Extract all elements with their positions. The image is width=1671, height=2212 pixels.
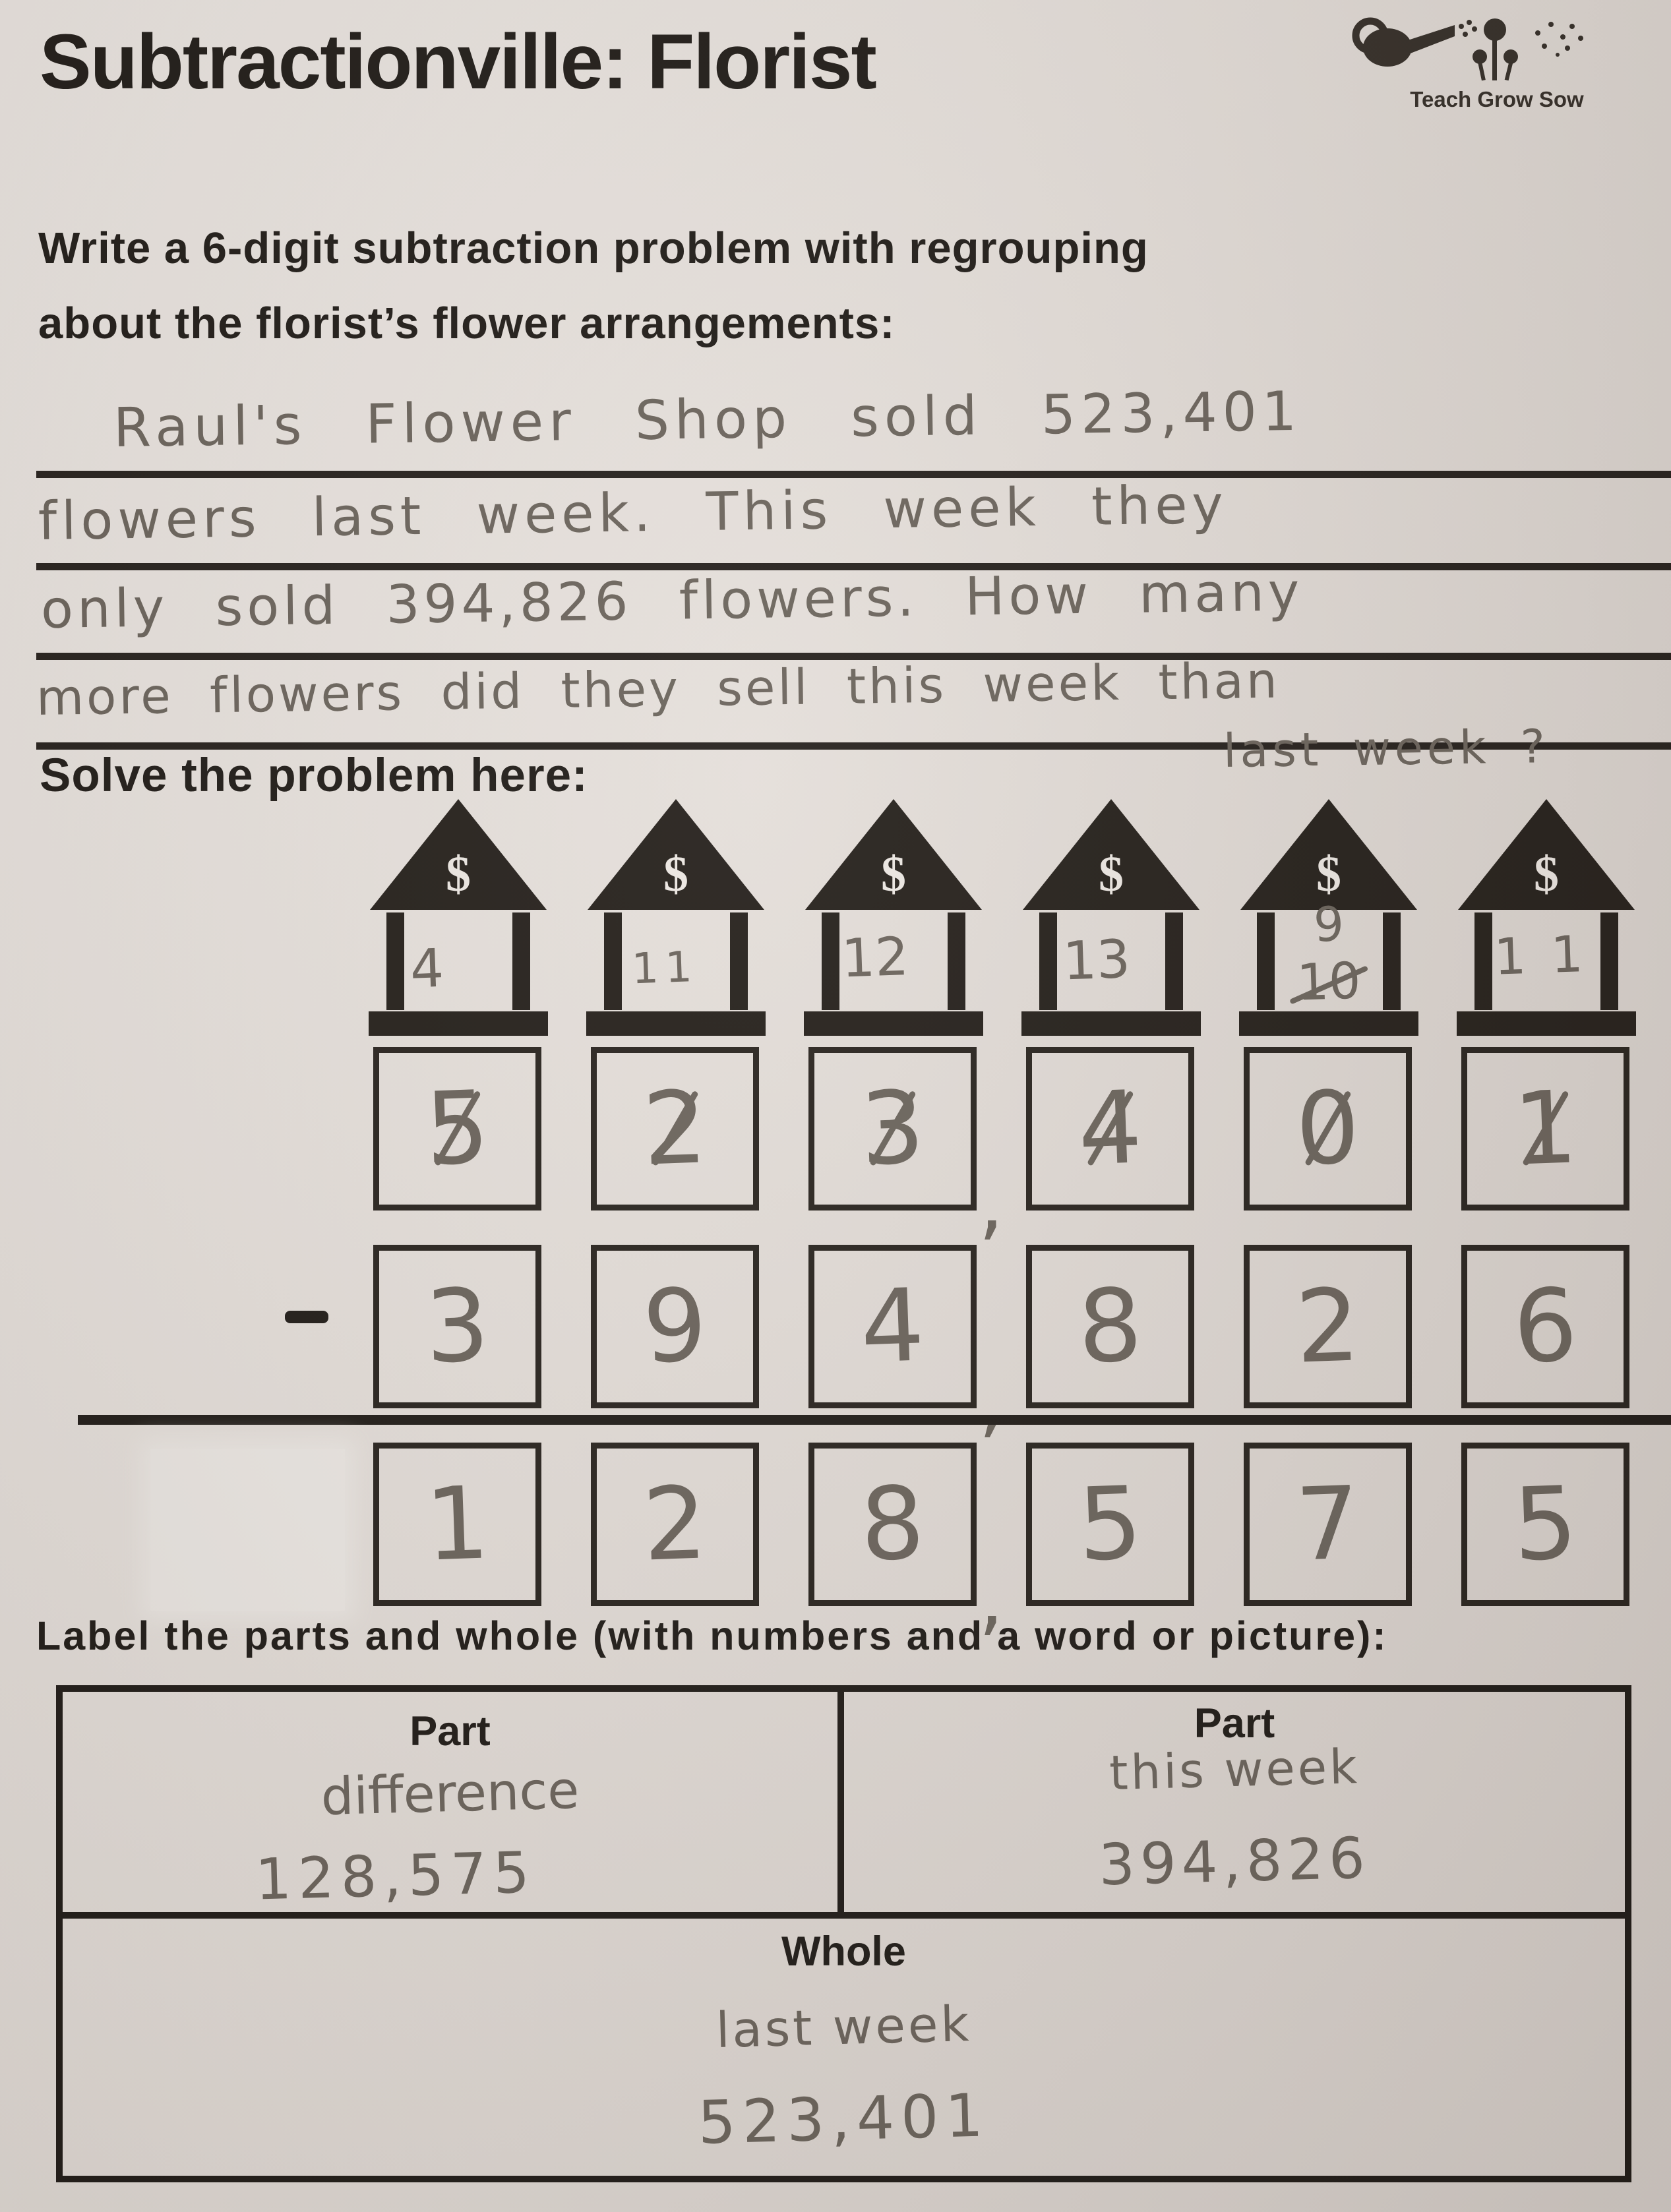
- subtrahend-digit-box: 2: [1244, 1245, 1412, 1408]
- subtrahend-digit-box: 9: [591, 1245, 759, 1408]
- bank-roof: $: [1458, 799, 1635, 910]
- page-title: Subtractionville: Florist: [40, 17, 876, 107]
- minuend-digit-box: 4: [1026, 1047, 1194, 1211]
- erased-box: [150, 1449, 345, 1611]
- subtrahend-digit-box: 3: [373, 1245, 541, 1408]
- dollar-sign-icon: $: [1534, 846, 1559, 910]
- minuend-digit-box: 1: [1461, 1047, 1629, 1211]
- table-border: [56, 2176, 1631, 2182]
- dollar-sign-icon: $: [1099, 846, 1124, 910]
- part-right-number: 394,826: [843, 1819, 1625, 1905]
- dollar-sign-icon: $: [881, 846, 906, 910]
- writing-line: [36, 471, 1671, 478]
- difference-digit-box: 5: [1026, 1443, 1194, 1606]
- bank-roof: $: [1023, 799, 1200, 910]
- regroup-note: 12: [810, 922, 1007, 990]
- minuend-row: 5 2 3 4 0 1 ,: [373, 1047, 1671, 1211]
- regroup-note: 11: [593, 940, 797, 996]
- bank-icon: $ 9 10: [1246, 799, 1411, 1038]
- dollar-sign-icon: $: [663, 846, 688, 910]
- story-line-3: only sold 394,826 flowers. How many: [40, 561, 1303, 640]
- whole-word: last week: [62, 1979, 1625, 2076]
- worksheet-page: Subtractionville: Florist Teach Grow Sow…: [0, 0, 1671, 2212]
- minuend-digit-box: 3: [808, 1047, 977, 1211]
- difference-digit-box: 8: [808, 1443, 977, 1606]
- watering-can-icon: [1356, 20, 1477, 67]
- whole-header: Whole: [63, 1928, 1625, 1975]
- thousands-comma: ,: [979, 1356, 1004, 1447]
- solve-heading: Solve the problem here:: [40, 749, 588, 802]
- story-line-1: Raul's Flower Shop sold 523,401: [113, 380, 1302, 460]
- regroup-note: 9: [1246, 894, 1413, 955]
- logo-caption: Teach Grow Sow: [1410, 87, 1584, 111]
- bank-roof: $: [1240, 799, 1417, 910]
- bank-icon: $ 11: [593, 799, 758, 1038]
- bank-base: [369, 1011, 548, 1036]
- subtrahend-row: 3 9 4 8 2 6 ,: [373, 1245, 1671, 1408]
- regroup-banks-row: $ 4 $ 11 $ 12 $ 13 $: [376, 799, 1629, 1038]
- bank-icon: $ 13: [1029, 799, 1194, 1038]
- minuend-digit-box: 2: [591, 1047, 759, 1211]
- dandelion-icon: [1473, 18, 1518, 80]
- story-line-4: more flowers did they sell this week tha…: [36, 653, 1280, 727]
- crossed-out-regroup-note: 10: [1246, 949, 1413, 1014]
- equals-rule-line: [78, 1415, 1671, 1425]
- bank-roof: $: [370, 799, 547, 910]
- bank-icon: $ 12: [811, 799, 976, 1038]
- bank-base: [1239, 1011, 1418, 1036]
- part-left-word: difference: [62, 1754, 838, 1834]
- difference-digit-box: 1: [373, 1443, 541, 1606]
- story-line-5: last week ?: [1223, 719, 1549, 778]
- prompt-line-2: about the florist’s flower arrangements:: [38, 298, 896, 349]
- part-left-header: Part: [63, 1708, 837, 1755]
- difference-digit-box: 5: [1461, 1443, 1629, 1606]
- bank-icon: $ 11: [1464, 799, 1629, 1038]
- story-line-2: flowers last week. This week they: [38, 474, 1228, 552]
- subtrahend-digit-box: 8: [1026, 1245, 1194, 1408]
- minuend-digit-box: 0: [1244, 1047, 1412, 1211]
- bank-base: [1457, 1011, 1636, 1036]
- regroup-note: 13: [1027, 925, 1229, 993]
- bank-roof: $: [805, 799, 982, 910]
- part-left-number: 128,575: [32, 1834, 759, 1919]
- teach-grow-sow-logo: Teach Grow Sow: [1339, 7, 1655, 122]
- bank-base: [804, 1011, 983, 1036]
- minus-sign: [285, 1311, 328, 1323]
- regroup-note: 11: [1463, 923, 1630, 988]
- difference-digit-box: 7: [1244, 1443, 1412, 1606]
- table-divider: [837, 1685, 844, 1919]
- subtrahend-digit-box: 4: [808, 1245, 977, 1408]
- bank-icon: $ 4: [376, 799, 541, 1038]
- table-border: [1625, 1685, 1631, 2182]
- bank-base: [1021, 1011, 1201, 1036]
- label-section-heading: Label the parts and whole (with numbers …: [36, 1613, 1388, 1659]
- prompt-line-1: Write a 6-digit subtraction problem with…: [38, 223, 1149, 274]
- subtrahend-digit-box: 6: [1461, 1245, 1629, 1408]
- bank-roof: $: [588, 799, 764, 910]
- thousands-comma: ,: [979, 1158, 1004, 1249]
- minuend-digit-box: 5: [373, 1047, 541, 1211]
- seed-dots-icon: [1535, 22, 1583, 57]
- difference-digit-box: 2: [591, 1443, 759, 1606]
- difference-row: 1 2 8 5 7 5 ,: [373, 1443, 1671, 1606]
- whole-number: 523,401: [62, 2064, 1625, 2174]
- dollar-sign-icon: $: [446, 846, 471, 910]
- regroup-note: 4: [375, 933, 576, 1001]
- table-divider: [56, 1912, 1631, 1919]
- bank-base: [586, 1011, 766, 1036]
